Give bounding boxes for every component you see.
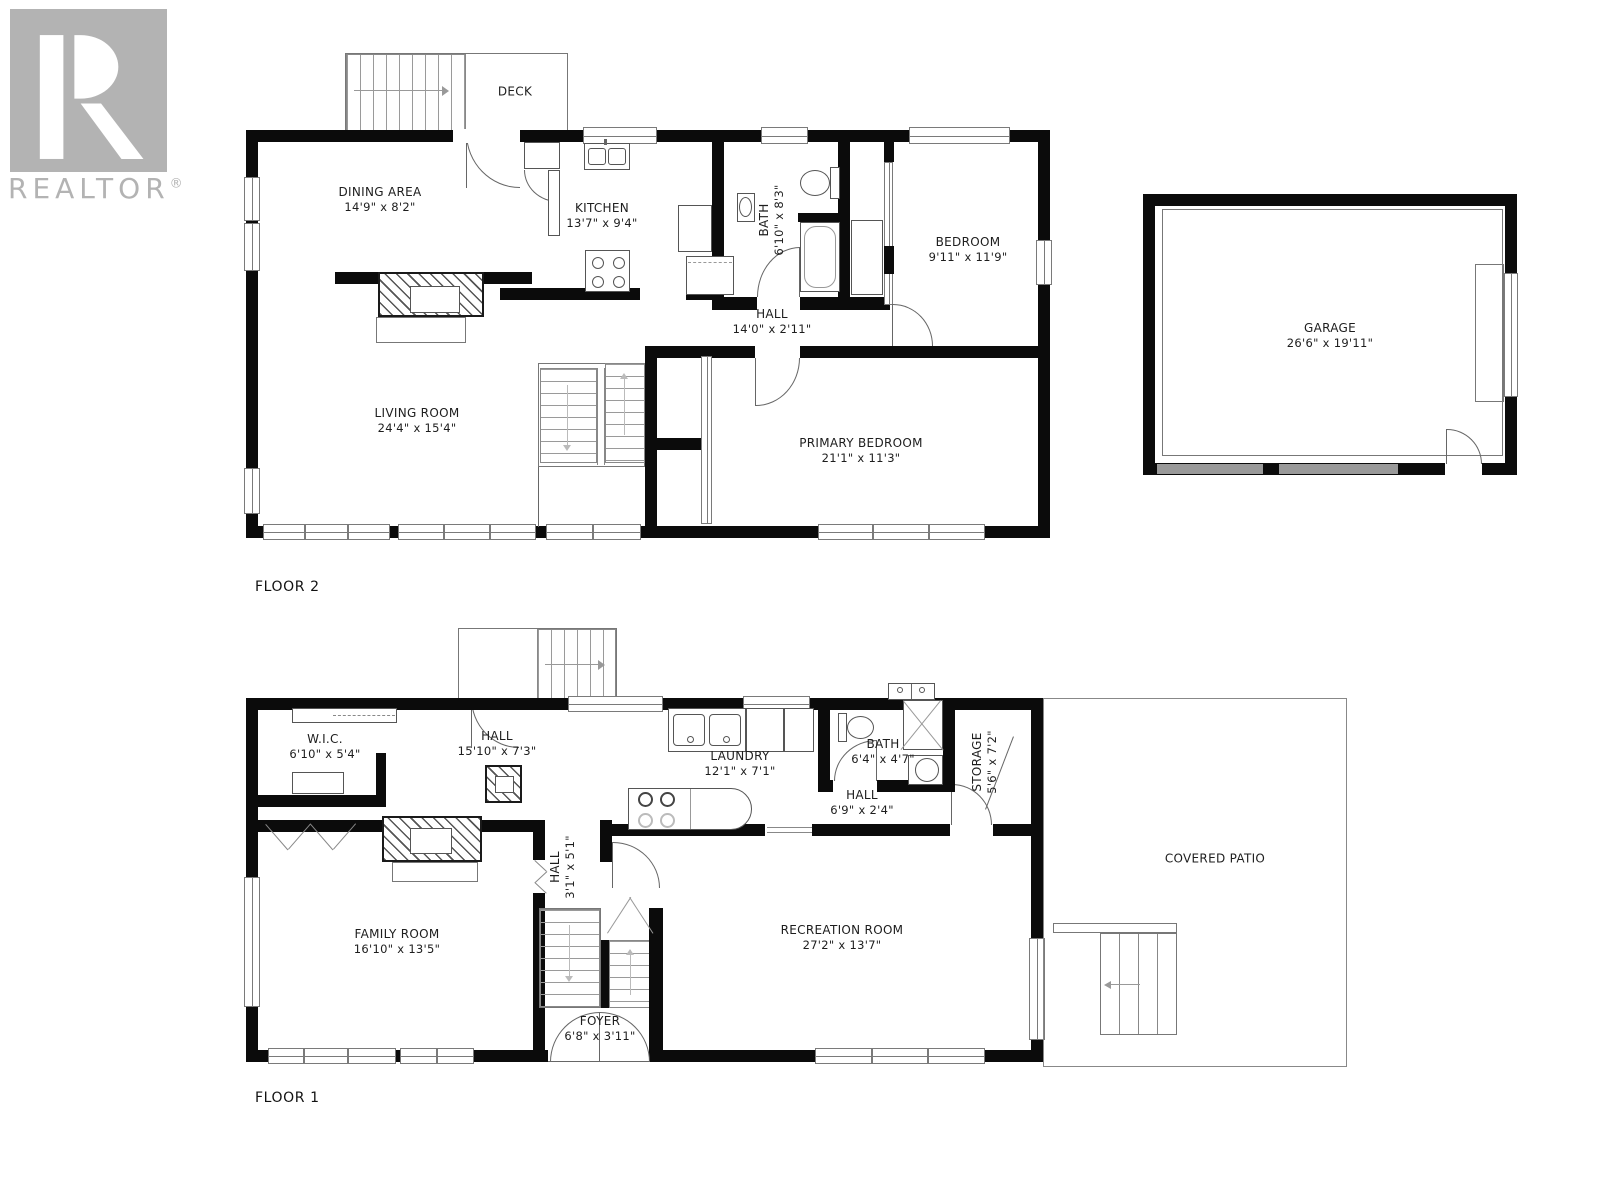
room-label-hall31: HALL3'1" x 5'1" [548, 835, 578, 899]
laundry-drain [723, 736, 730, 743]
window [909, 127, 1010, 144]
fireplace-insert [410, 286, 460, 313]
primary-door-arc [756, 358, 800, 406]
window [568, 696, 663, 712]
under-stair-line [607, 897, 631, 934]
linen-shelf [851, 220, 883, 295]
bath1-sink-bowl [915, 758, 939, 782]
patio-stairs-arrowhead-icon [1100, 981, 1111, 989]
patio-stairs-arrow [1108, 984, 1140, 985]
realtor-logo [10, 9, 167, 172]
dryer [784, 708, 814, 752]
vanity-faucet [897, 687, 903, 693]
stair-rail [597, 368, 605, 465]
floor2-label: FLOOR 2 [255, 579, 320, 595]
burner [638, 792, 653, 807]
room-label-bedroom: BEDROOM9'11" x 11'9" [929, 235, 1008, 265]
room-label-deck: DECK [498, 84, 532, 99]
cased-opening [640, 287, 686, 301]
wall [1143, 194, 1517, 206]
closet-sliding-door [701, 356, 712, 524]
sink-faucet [604, 139, 607, 145]
burner [592, 276, 604, 288]
fireplace-hearth [392, 862, 478, 882]
room-label-hall2: HALL14'0" x 2'11" [733, 307, 812, 337]
floor1-label: FLOOR 1 [255, 1090, 320, 1106]
burner [613, 257, 625, 269]
wall [884, 130, 894, 162]
room-label-dining: DINING AREA14'9" x 8'2" [338, 185, 421, 215]
window [244, 223, 260, 271]
room-label-patio: COVERED PATIO [1165, 851, 1265, 866]
fireplace-insert [495, 776, 514, 793]
window-mullion [347, 1049, 349, 1063]
room-label-bath2: BATH6'10" x 8'3" [757, 184, 787, 255]
window-mullion [347, 525, 349, 539]
registered-mark: ® [170, 177, 188, 192]
room-label-hall69: HALL6'9" x 2'4" [830, 788, 894, 818]
wall [943, 698, 955, 792]
window-mullion [592, 525, 594, 539]
room-label-living: LIVING ROOM24'4" x 15'4" [375, 406, 460, 436]
stairs-arrow-stem [624, 375, 625, 435]
window-mullion [436, 1049, 438, 1063]
window [263, 524, 390, 540]
bath-sink-bowl [739, 197, 752, 217]
burner [613, 276, 625, 288]
room-label-kitchen: KITCHEN13'7" x 9'4" [566, 201, 637, 231]
door-opening [950, 824, 993, 836]
toilet-bowl [800, 170, 830, 196]
room-label-laundry: LAUNDRY12'1" x 7'1" [704, 749, 775, 779]
wall [818, 698, 830, 792]
sink-basin [608, 148, 626, 165]
wall [812, 824, 1043, 836]
window-mullion [927, 1049, 929, 1063]
toilet-bowl [847, 716, 874, 739]
room-label-family: FAMILY ROOM16'10" x 13'5" [354, 927, 440, 957]
toilet-tank [830, 167, 840, 199]
stairs-arrow-stem [567, 385, 568, 445]
floor-plan-canvas: REALTOR® [0, 0, 1600, 1200]
window-mullion [303, 1049, 305, 1063]
door-opening [755, 346, 800, 358]
dresser [292, 772, 344, 794]
bathtub-basin [804, 226, 836, 288]
closet-sliding-door [884, 162, 893, 305]
accordion-door-line [534, 860, 546, 872]
cased-opening-line [767, 832, 812, 833]
vanity-faucet [919, 687, 925, 693]
cased-opening-line [767, 827, 812, 828]
wall [1143, 194, 1155, 475]
fireplace-insert [410, 828, 452, 854]
deck-stairs-arrowhead-icon [442, 86, 454, 96]
accordion-door-line [534, 882, 546, 894]
burner [660, 813, 675, 828]
stairs-arrow-stem [630, 950, 631, 995]
patio-stair-tread [1157, 934, 1158, 1034]
room-label-wic: W.I.C.6'10" x 5'4" [289, 732, 360, 762]
wall [246, 795, 386, 807]
window [583, 127, 657, 144]
window [268, 1048, 396, 1064]
fireplace-hearth [376, 317, 466, 343]
vanity-divider [911, 684, 912, 699]
window-mullion [928, 525, 930, 539]
door-opening [1445, 463, 1482, 475]
laundry-drain [687, 736, 694, 743]
garage-door [1157, 464, 1263, 474]
kitchen-counter [548, 170, 560, 236]
washer [746, 708, 784, 752]
pantry-dashed-line [688, 262, 732, 263]
bedroom-door-arc [893, 304, 933, 346]
entry-stairs-arrow [545, 664, 598, 665]
window [244, 877, 260, 1007]
sink-basin [588, 148, 606, 165]
realtor-wordmark: REALTOR® [8, 172, 248, 205]
burner [660, 792, 675, 807]
room-label-bath1: BATH6'4" x 4'7" [851, 737, 915, 767]
counter-divider [690, 789, 691, 829]
stairs-arrow-down-icon [565, 976, 573, 986]
entry-stairs-arrowhead-icon [598, 660, 610, 670]
wall [600, 820, 612, 862]
stairwell-line [538, 467, 539, 527]
window-mullion [304, 525, 306, 539]
stairs-arrow-up-icon [620, 369, 628, 379]
realtor-wordmark-text: REALTOR [8, 172, 170, 205]
window-mullion [872, 525, 874, 539]
patio-outline [1043, 698, 1347, 1067]
room-label-primary: PRIMARY BEDROOM21'1" x 11'3" [799, 436, 923, 466]
window [244, 468, 260, 514]
stairs-arrow-stem [569, 925, 570, 978]
window-mullion [871, 1049, 873, 1063]
window [398, 524, 536, 540]
room-label-foyer: FOYER6'8" x 3'11" [564, 1014, 635, 1044]
wall [1038, 130, 1050, 538]
fridge [678, 205, 712, 252]
door-opening [453, 129, 520, 143]
wall [484, 272, 532, 284]
closet-rod-dashed [333, 715, 395, 716]
room-label-hall15: HALL15'10" x 7'3" [458, 729, 537, 759]
wall [798, 213, 850, 222]
realtor-r-icon [10, 9, 167, 172]
patio-landing [1053, 923, 1177, 933]
window [244, 177, 260, 221]
window-mullion [489, 525, 491, 539]
deck-stairs-arrow [354, 90, 442, 91]
window-mullion [443, 525, 445, 539]
wall [533, 820, 545, 860]
wall [657, 438, 703, 450]
window [1036, 240, 1052, 285]
toilet-tank [838, 713, 847, 742]
room-label-storage: STORAGE5'6" x 7'2" [970, 730, 1000, 794]
burner [638, 813, 653, 828]
kitchen-closet [524, 142, 560, 169]
wall [601, 940, 609, 1008]
stairs-down-run [540, 909, 600, 1007]
burner [592, 257, 604, 269]
garage-door [1279, 464, 1398, 474]
stairs-arrow-down-icon [563, 445, 571, 455]
garage-side-door [1504, 273, 1518, 397]
garage-door-panel [1475, 264, 1504, 402]
window [761, 127, 808, 144]
wall [645, 346, 657, 538]
wall [884, 246, 894, 274]
door-arc [613, 842, 660, 888]
room-label-rec: RECREATION ROOM27'2" x 13'7" [781, 923, 904, 953]
window [818, 524, 985, 540]
room-label-garage: GARAGE26'6" x 19'11" [1287, 321, 1373, 351]
accordion-door-line [535, 871, 547, 883]
wall [335, 272, 380, 284]
stairs-arrow-up-icon [626, 945, 634, 955]
window [815, 1048, 985, 1064]
